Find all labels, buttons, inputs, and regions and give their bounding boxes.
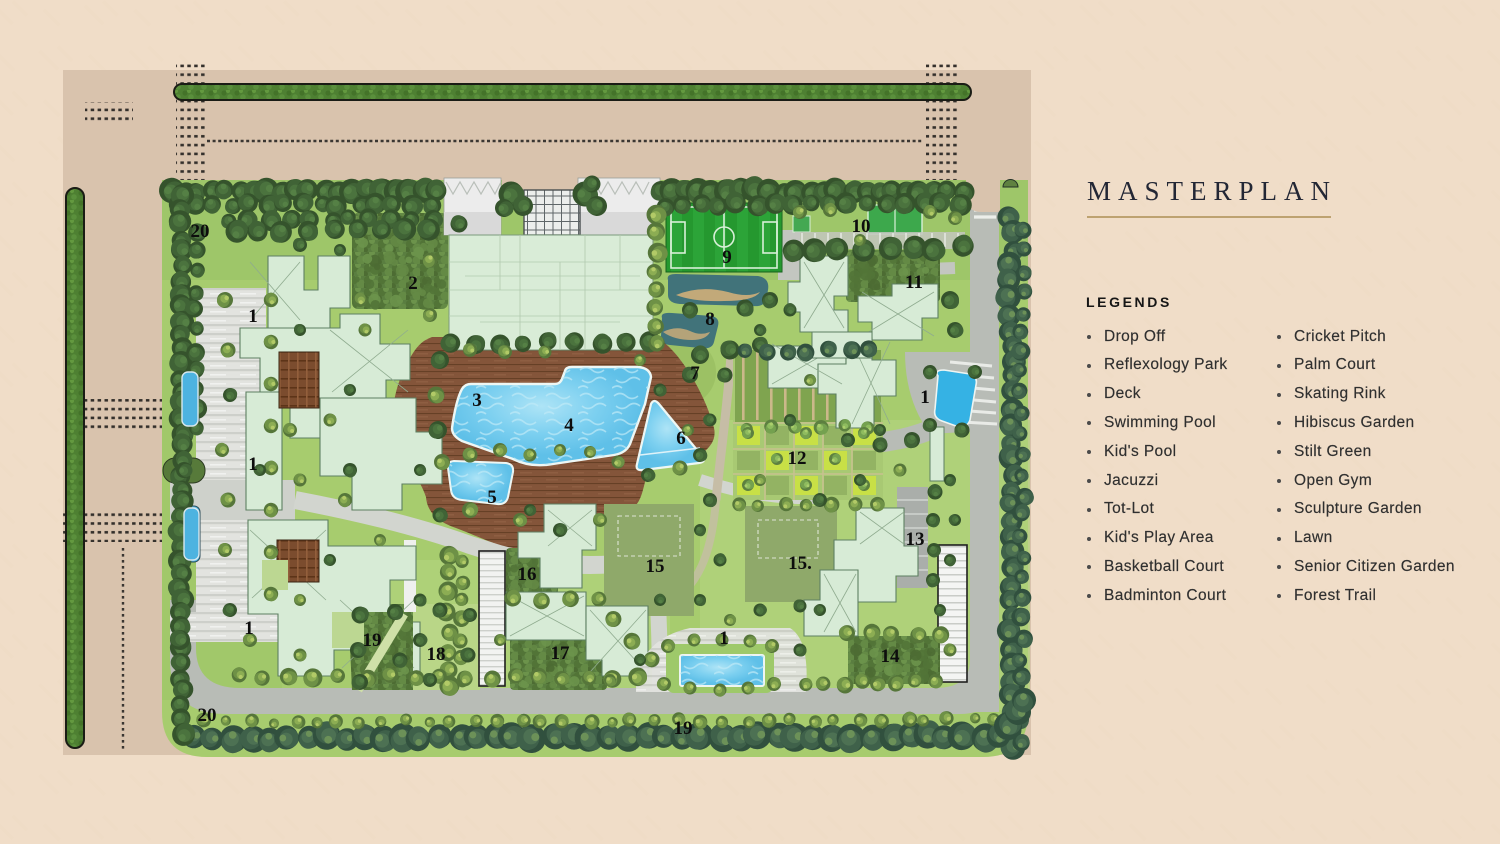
svg-text:16: 16 [518, 564, 537, 585]
svg-text:20: 20 [191, 221, 210, 242]
svg-text:9: 9 [722, 247, 732, 268]
svg-text:1: 1 [719, 628, 729, 649]
svg-text:1: 1 [920, 387, 930, 408]
svg-text:10: 10 [852, 216, 871, 237]
svg-text:13: 13 [906, 529, 925, 550]
svg-text:19: 19 [363, 630, 382, 651]
svg-text:1: 1 [248, 306, 258, 327]
svg-text:6: 6 [676, 428, 686, 449]
svg-text:8: 8 [705, 309, 715, 330]
svg-text:2: 2 [408, 273, 418, 294]
svg-text:4: 4 [564, 415, 574, 436]
svg-text:3: 3 [472, 390, 482, 411]
svg-text:18: 18 [427, 644, 446, 665]
svg-text:20: 20 [198, 705, 217, 726]
svg-text:15: 15 [646, 556, 665, 577]
svg-text:1: 1 [248, 454, 258, 475]
svg-text:7: 7 [690, 363, 700, 384]
svg-text:14: 14 [881, 646, 901, 667]
svg-text:1: 1 [244, 618, 254, 639]
svg-text:19: 19 [674, 718, 693, 739]
svg-text:11: 11 [905, 272, 923, 293]
svg-text:15.: 15. [788, 553, 812, 574]
svg-text:5: 5 [487, 487, 497, 508]
svg-text:12: 12 [788, 448, 807, 469]
svg-text:17: 17 [551, 643, 571, 664]
